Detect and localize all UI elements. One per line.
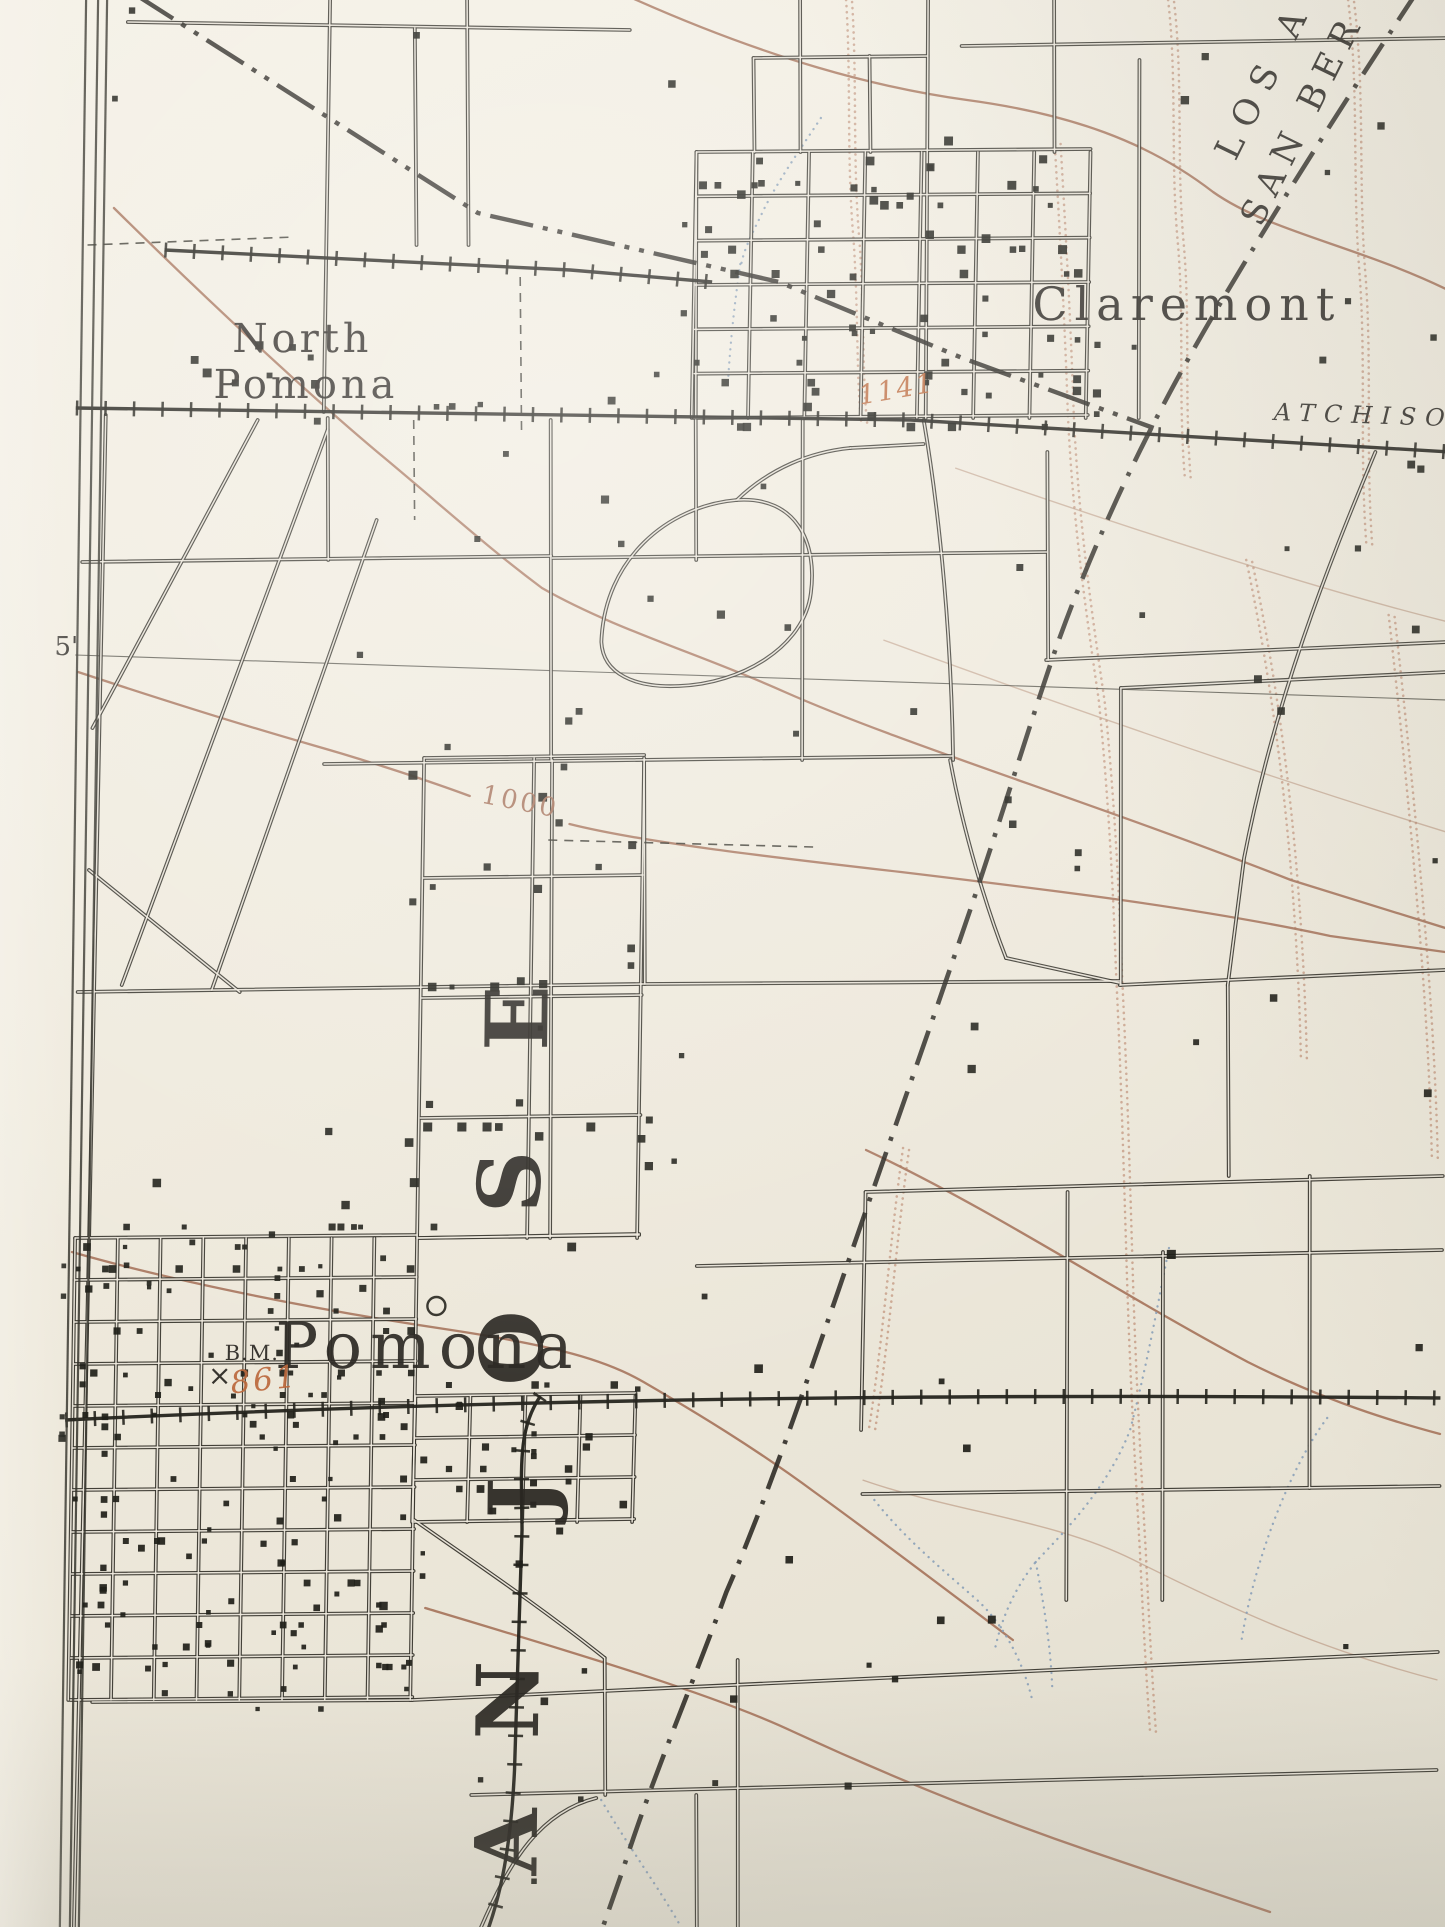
rancho-letter-S2: S	[459, 1151, 561, 1213]
topographic-map: NorthPomonaClaremontPomonaB.M.×861114110…	[0, 0, 1445, 1927]
rancho-letter-O: O	[462, 1311, 564, 1386]
map-photo: NorthPomonaClaremontPomonaB.M.×861114110…	[0, 0, 1445, 1927]
rancho-letter-N: N	[458, 1661, 560, 1740]
rancho-letter-J: J	[470, 1478, 571, 1526]
label-claremont: Claremont	[1032, 277, 1342, 331]
label-graticule-5min: 5'	[54, 632, 78, 662]
labels-layer: NorthPomonaClaremontPomonaB.M.×861114110…	[40, 0, 1445, 1927]
label-contour-1000: 1000	[479, 780, 562, 824]
map-neatline	[60, 0, 107, 1927]
label-railroad-atchison: ATCHISO	[1271, 398, 1445, 432]
rancho-letter-E: E	[467, 985, 569, 1051]
rancho-letter-A: A	[456, 1807, 558, 1876]
railroad-atsf-main-ticks	[75, 408, 1445, 452]
railroad-spur	[164, 250, 712, 282]
label-north-pomona-line1: North	[232, 316, 373, 362]
label-elevation-861: 861	[229, 1359, 300, 1402]
label-north-pomona-line2: Pomona	[213, 362, 398, 408]
label-benchmark-cross: ×	[208, 1359, 232, 1392]
